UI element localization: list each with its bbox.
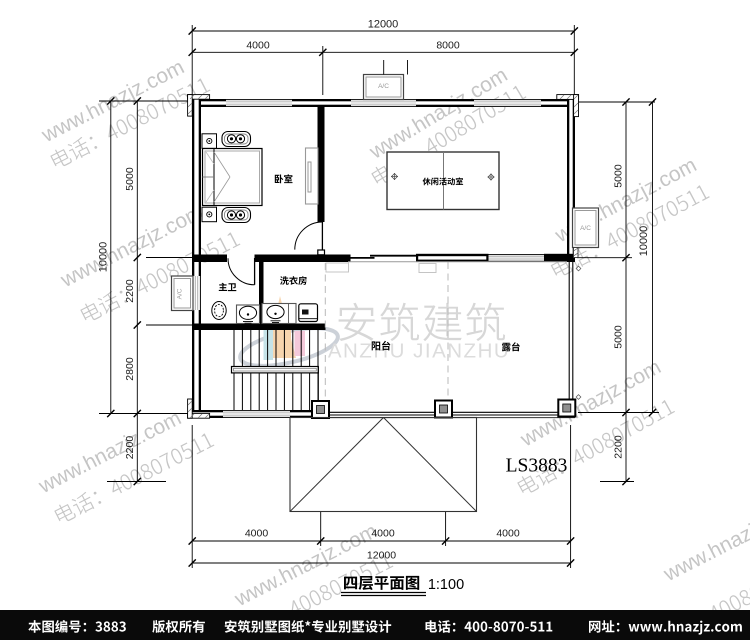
svg-text:12000: 12000 bbox=[367, 550, 396, 562]
svg-text:2200: 2200 bbox=[613, 435, 625, 459]
svg-text:2800: 2800 bbox=[124, 357, 136, 381]
svg-text:10000: 10000 bbox=[638, 226, 650, 257]
svg-text:5000: 5000 bbox=[613, 325, 625, 349]
svg-text:12000: 12000 bbox=[368, 19, 399, 31]
svg-text:5000: 5000 bbox=[613, 164, 625, 188]
svg-text:4000: 4000 bbox=[371, 528, 395, 540]
svg-text:10000: 10000 bbox=[98, 242, 110, 273]
svg-text:ANZHU JIANZHU: ANZHU JIANZHU bbox=[328, 340, 510, 363]
svg-text:2200: 2200 bbox=[124, 436, 136, 460]
svg-text:5000: 5000 bbox=[124, 167, 136, 191]
svg-text:4000: 4000 bbox=[245, 528, 269, 540]
svg-text:A/C: A/C bbox=[580, 225, 591, 232]
svg-text:4000: 4000 bbox=[496, 528, 520, 540]
svg-text:A/C: A/C bbox=[177, 288, 184, 299]
svg-text:LS3883: LS3883 bbox=[506, 456, 568, 477]
svg-text:A/C: A/C bbox=[378, 83, 389, 90]
svg-text:8000: 8000 bbox=[436, 40, 460, 52]
svg-text:4000: 4000 bbox=[246, 40, 270, 52]
svg-text:2200: 2200 bbox=[124, 279, 136, 303]
svg-text:1:100: 1:100 bbox=[428, 577, 464, 593]
